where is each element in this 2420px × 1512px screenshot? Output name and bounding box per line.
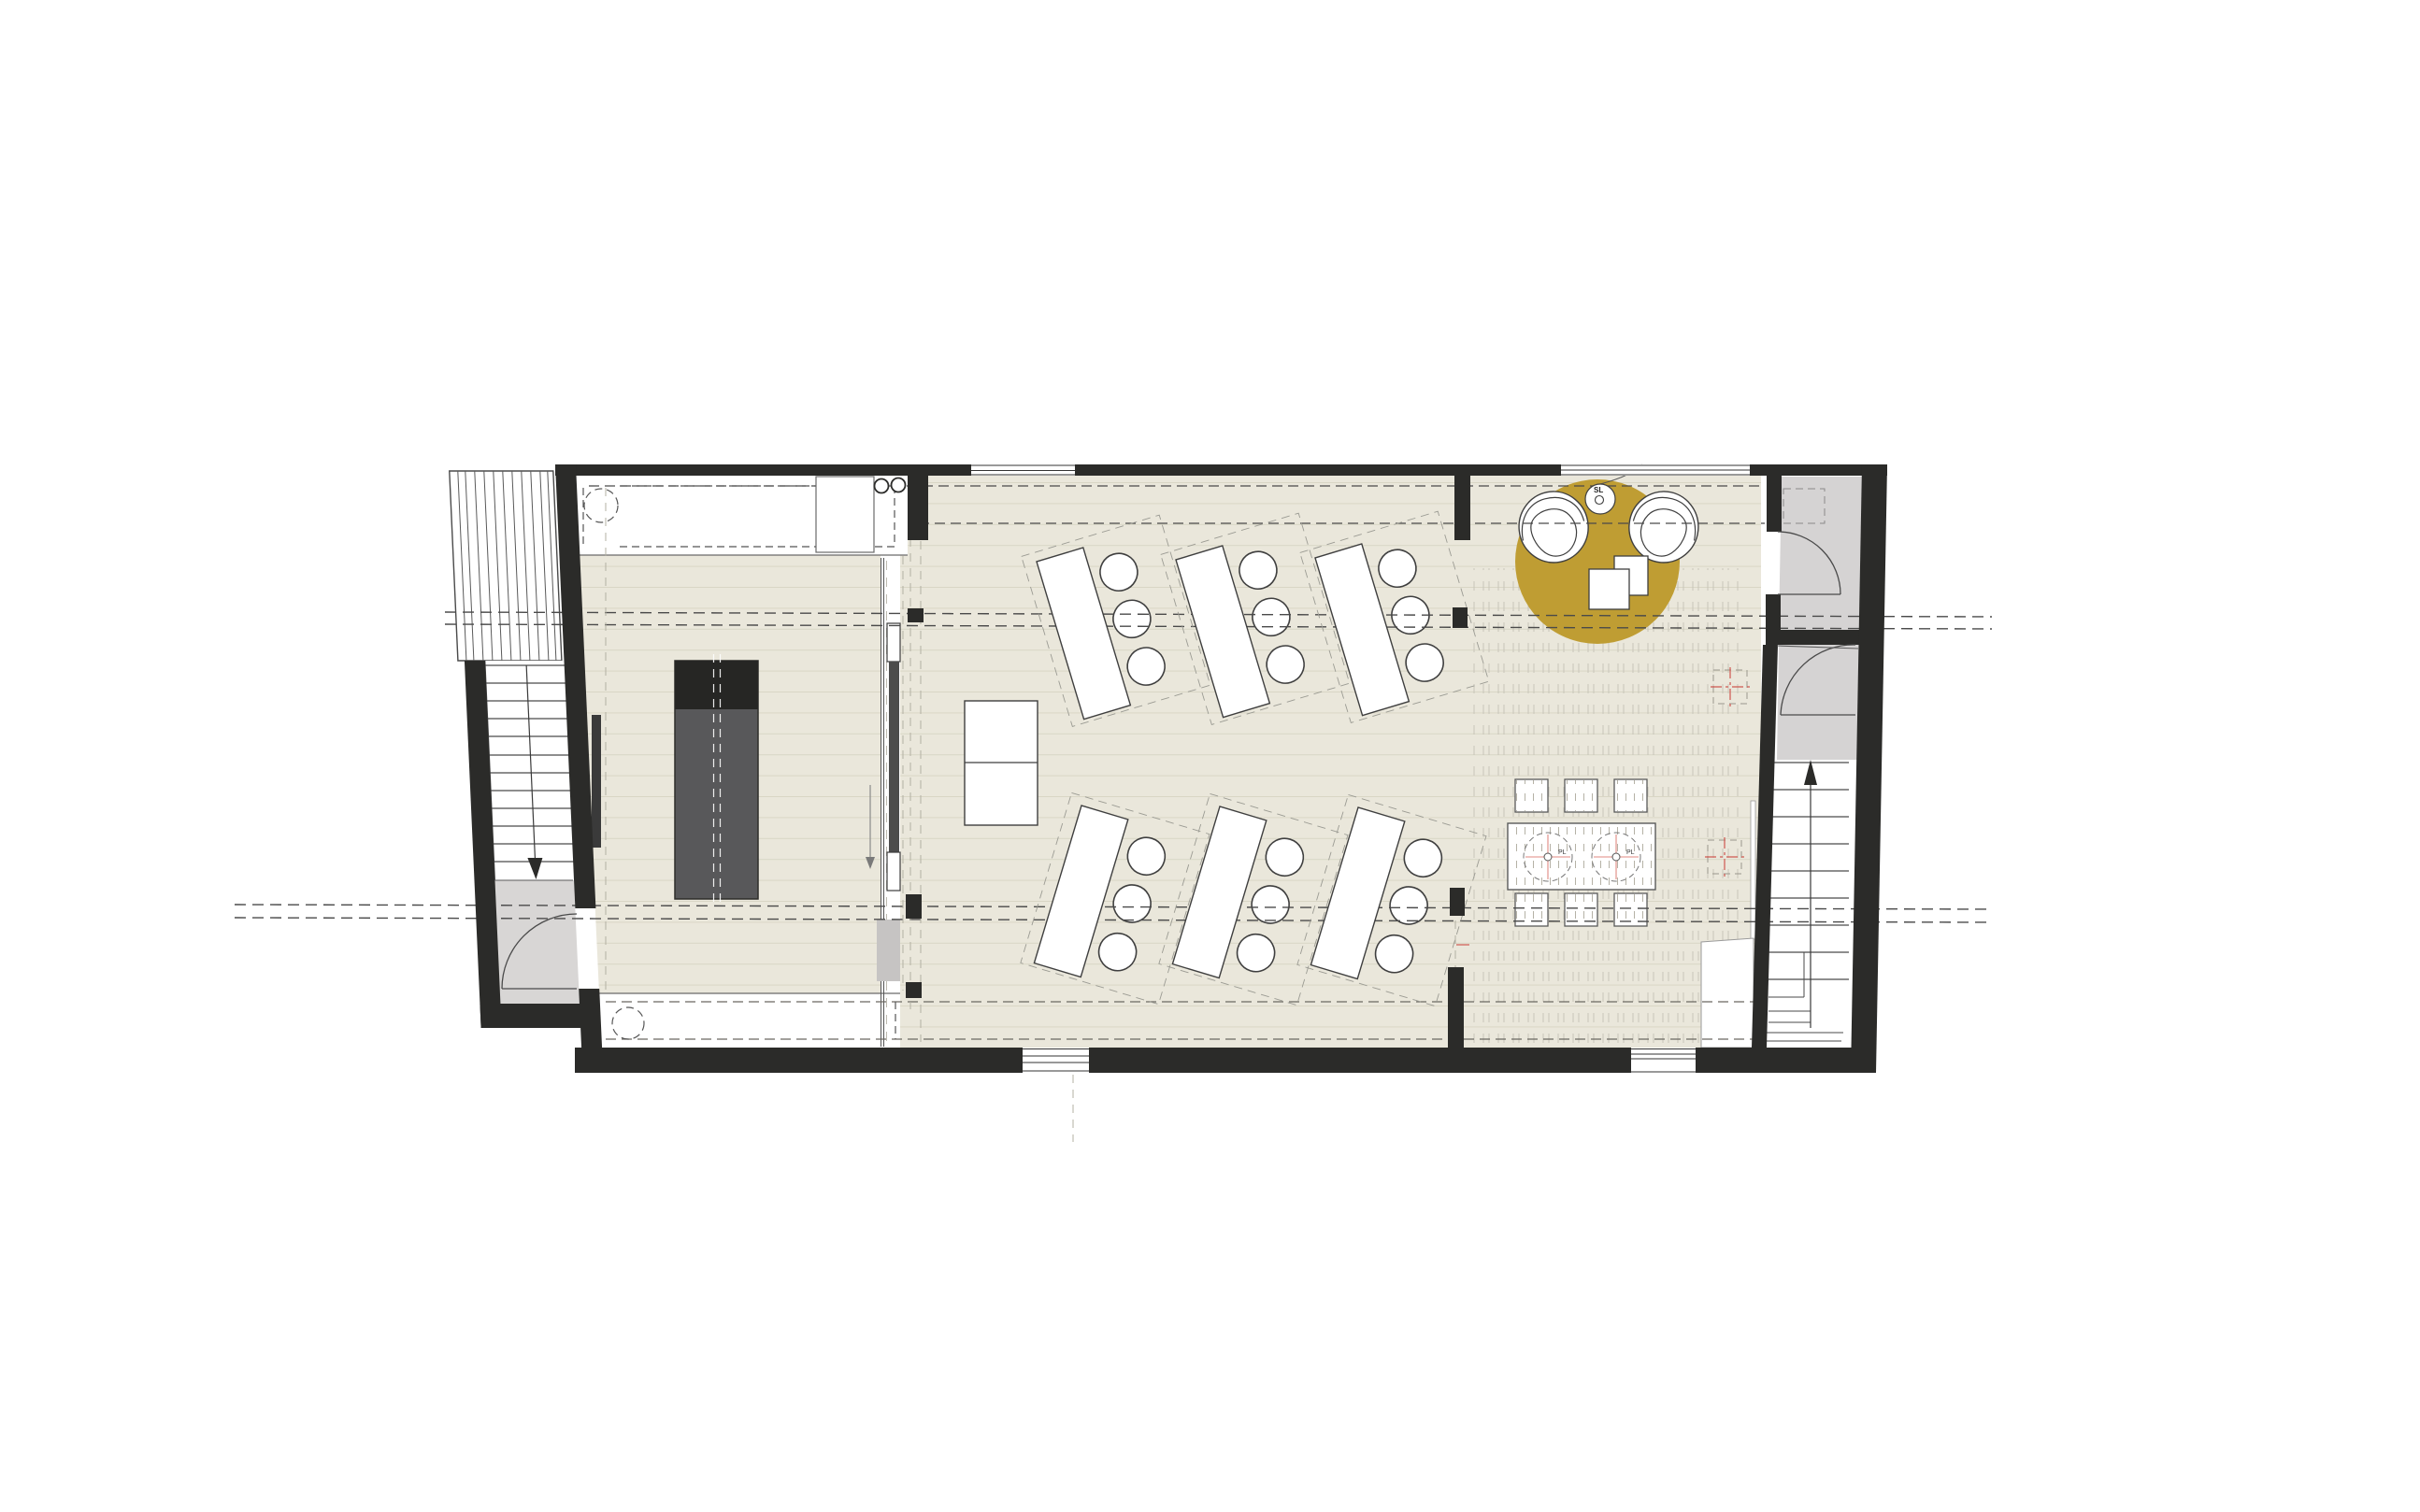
svg-text:PL: PL — [1558, 849, 1567, 856]
svg-text:PL: PL — [1626, 849, 1635, 856]
svg-text:SL: SL — [1594, 486, 1603, 494]
